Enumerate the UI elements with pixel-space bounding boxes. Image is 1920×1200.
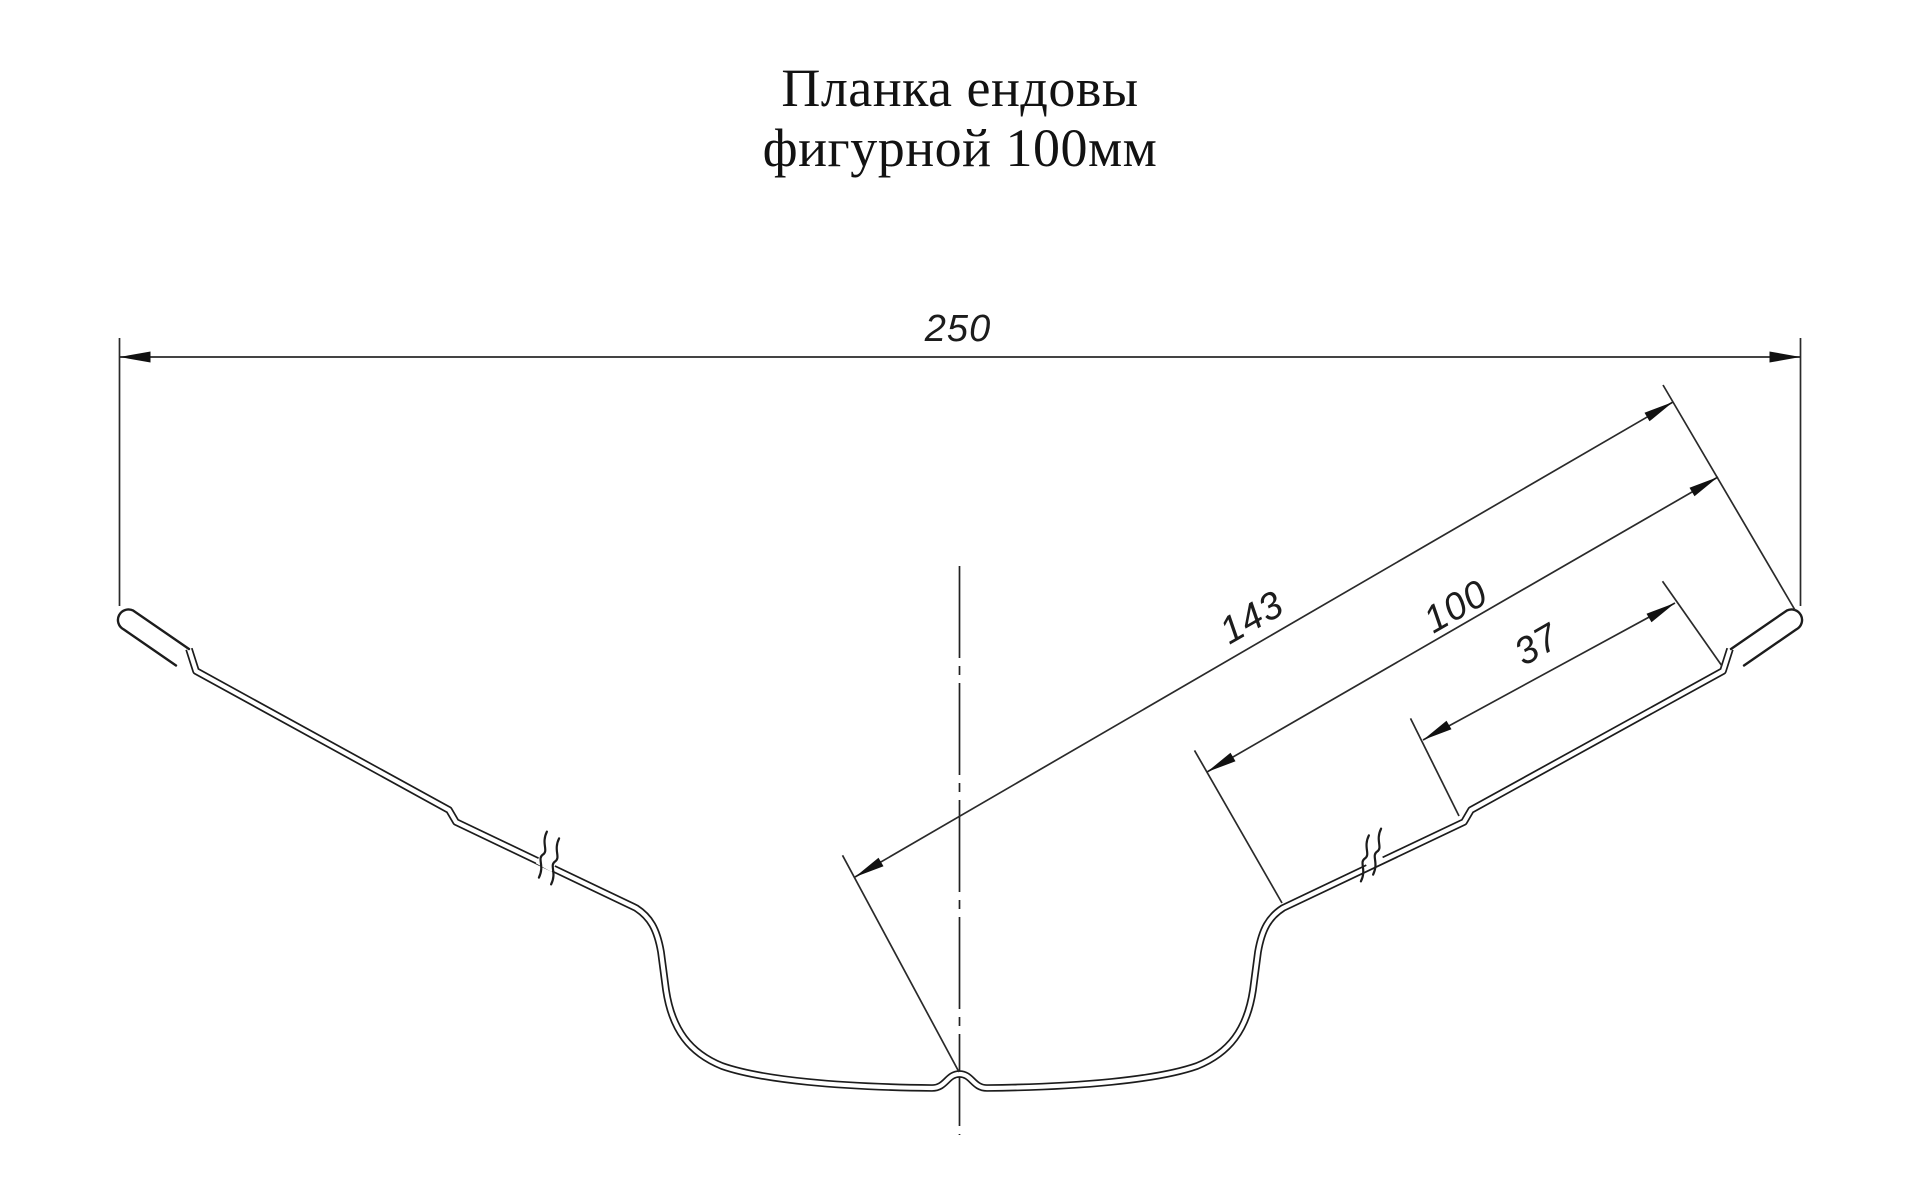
drawing-page: Планка ендовы фигурной 100мм: [0, 0, 1920, 1200]
dim-37-arrow-left: [1423, 721, 1452, 740]
dim-37-label: 37: [1507, 615, 1567, 674]
left-hem-fold: [118, 609, 189, 665]
dim-overall-width: [120, 338, 1801, 606]
valley-strip-drawing: 250 143 100 37: [0, 0, 1920, 1200]
dim-250-label: 250: [924, 308, 991, 350]
break-mark-left: [536, 832, 562, 885]
dim-143-label: 143: [1213, 583, 1292, 653]
dim-250-arrow-left: [120, 352, 151, 363]
dim-143-arrow-left: [855, 858, 884, 877]
dim-100-ext-left: [1195, 750, 1283, 903]
dim-100-arrow-right: [1690, 477, 1719, 496]
dim-143-ext-left: [843, 855, 960, 1072]
dim-143: [843, 385, 1796, 1072]
dim-100: [1195, 477, 1719, 903]
dim-250-arrow-right: [1770, 352, 1801, 363]
dim-143-arrow-right: [1645, 402, 1674, 421]
dim-100-arrow-left: [1207, 753, 1236, 772]
dim-37-ext-right: [1663, 581, 1723, 666]
dim-100-label: 100: [1417, 572, 1496, 642]
dim-37-arrow-right: [1647, 603, 1676, 622]
right-hem-fold: [1731, 609, 1802, 665]
